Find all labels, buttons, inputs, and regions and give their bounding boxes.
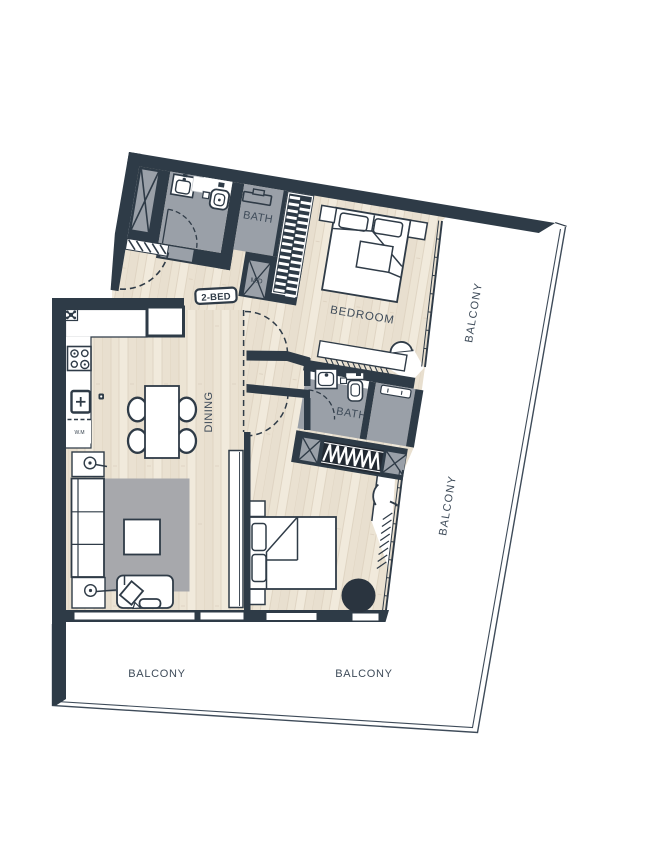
svg-text:DINING: DINING: [203, 392, 215, 433]
svg-text:BALCONY: BALCONY: [128, 668, 185, 680]
svg-text:BALCONY: BALCONY: [335, 668, 392, 680]
svg-text:2-BED: 2-BED: [201, 291, 231, 304]
svg-text:W.M: W.M: [75, 430, 85, 436]
